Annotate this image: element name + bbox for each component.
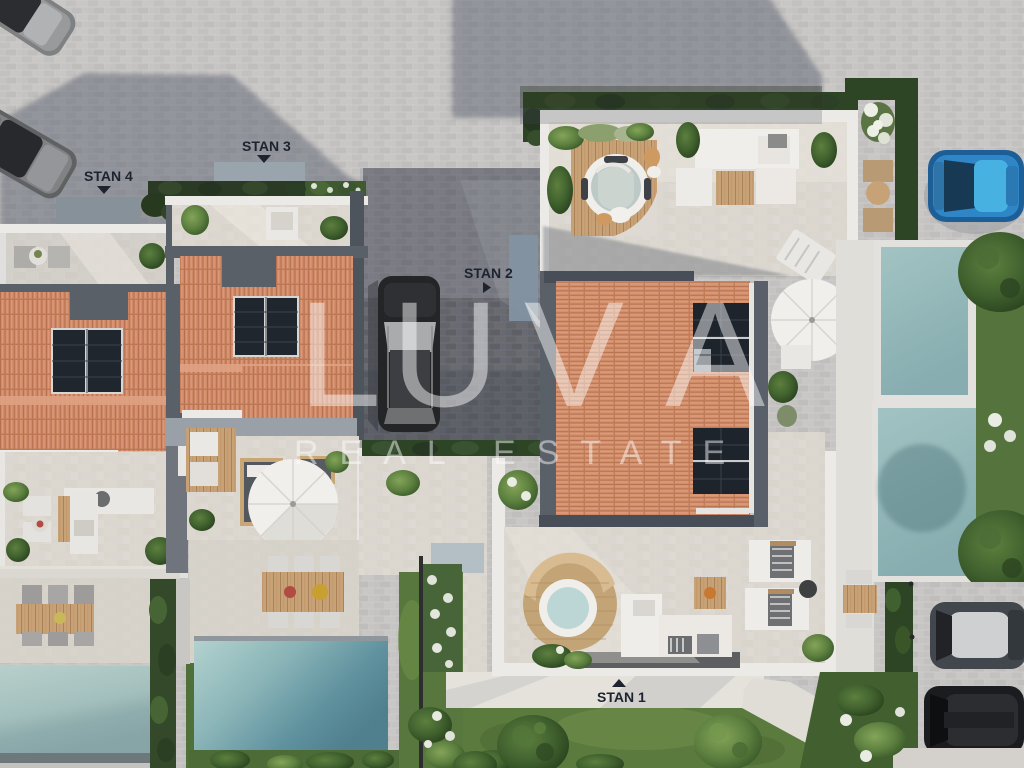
svg-text:U: U [391,270,499,438]
svg-text:STAN 1: STAN 1 [597,689,646,705]
svg-text:L: L [298,270,381,438]
svg-text:STAN 3: STAN 3 [242,138,291,154]
svg-text:V: V [524,270,624,438]
svg-text:A: A [665,270,765,438]
svg-text:STAN 4: STAN 4 [84,168,133,184]
svg-text:ESTATE: ESTATE [493,434,746,472]
svg-text:REAL: REAL [294,434,467,472]
